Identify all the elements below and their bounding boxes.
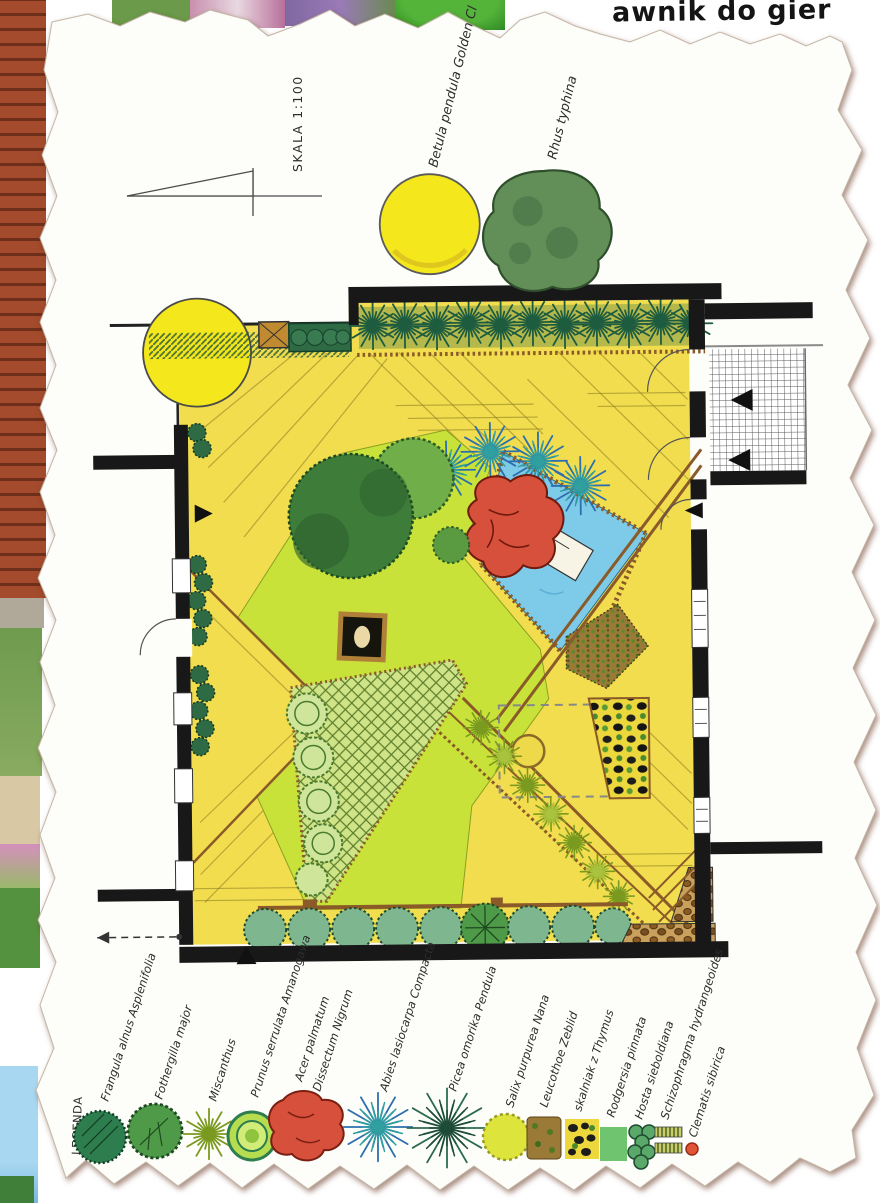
betula-tree-symbol bbox=[379, 174, 480, 275]
legend-symbol-leucothoe bbox=[527, 1117, 561, 1159]
legend-symbol-acer bbox=[269, 1091, 344, 1160]
scale-label: SKALA 1:100 bbox=[290, 75, 305, 172]
round-well-feature bbox=[512, 735, 544, 767]
legend-symbol-rodgersia bbox=[600, 1127, 627, 1161]
legend-symbol-thymus-rockery bbox=[565, 1119, 599, 1159]
legend-symbol-fothergilla bbox=[128, 1104, 182, 1158]
rhus-tree-symbol bbox=[482, 170, 612, 292]
entrance-grid-paving bbox=[709, 348, 806, 485]
top-right-wall-extension bbox=[705, 302, 813, 319]
garden-plan-scan: SKALA 1:100 Betula pendula Golden Cl Rhu… bbox=[0, 0, 880, 1203]
legend-symbol-frangula bbox=[74, 1111, 126, 1163]
gate-hedge bbox=[289, 323, 351, 352]
legend-symbol-clematis bbox=[686, 1143, 698, 1155]
bottom-right-wall-extension bbox=[710, 841, 822, 854]
garden-gate bbox=[259, 322, 289, 348]
square-garden-feature bbox=[339, 614, 385, 660]
legend-symbol-salix bbox=[483, 1114, 529, 1160]
